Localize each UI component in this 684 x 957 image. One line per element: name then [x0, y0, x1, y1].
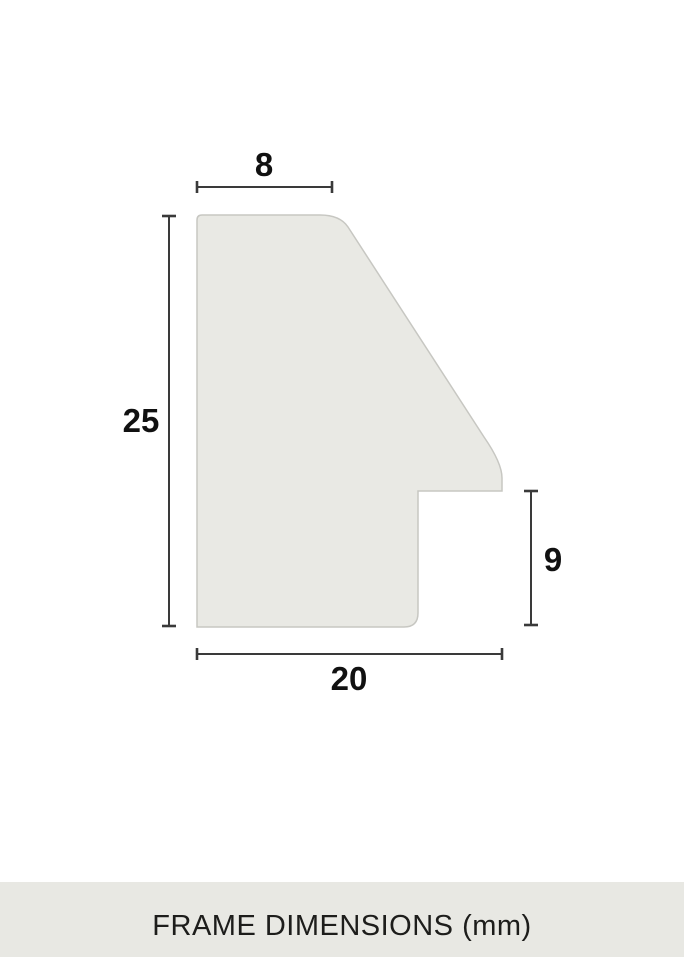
dimension-label-profile-width: 20	[331, 660, 368, 697]
dimension-label-top-width: 8	[255, 146, 273, 183]
frame-profile-shape	[197, 215, 502, 627]
footer-title: FRAME DIMENSIONS (mm)	[152, 911, 531, 943]
dimension-label-profile-height: 25	[123, 402, 160, 439]
footer-bar: FRAME DIMENSIONS (mm)	[0, 882, 684, 957]
dimension-top-width: 8	[197, 146, 332, 193]
frame-dimensions-page: 8 25 9 20 FRAME DIMENSIONS (mm)	[0, 0, 684, 957]
dimension-rabbet-height: 9	[524, 491, 562, 625]
dimension-label-rabbet-height: 9	[544, 541, 562, 578]
dimension-profile-width: 20	[197, 648, 502, 697]
dimension-profile-height: 25	[123, 216, 176, 626]
frame-profile-diagram: 8 25 9 20	[0, 0, 684, 882]
